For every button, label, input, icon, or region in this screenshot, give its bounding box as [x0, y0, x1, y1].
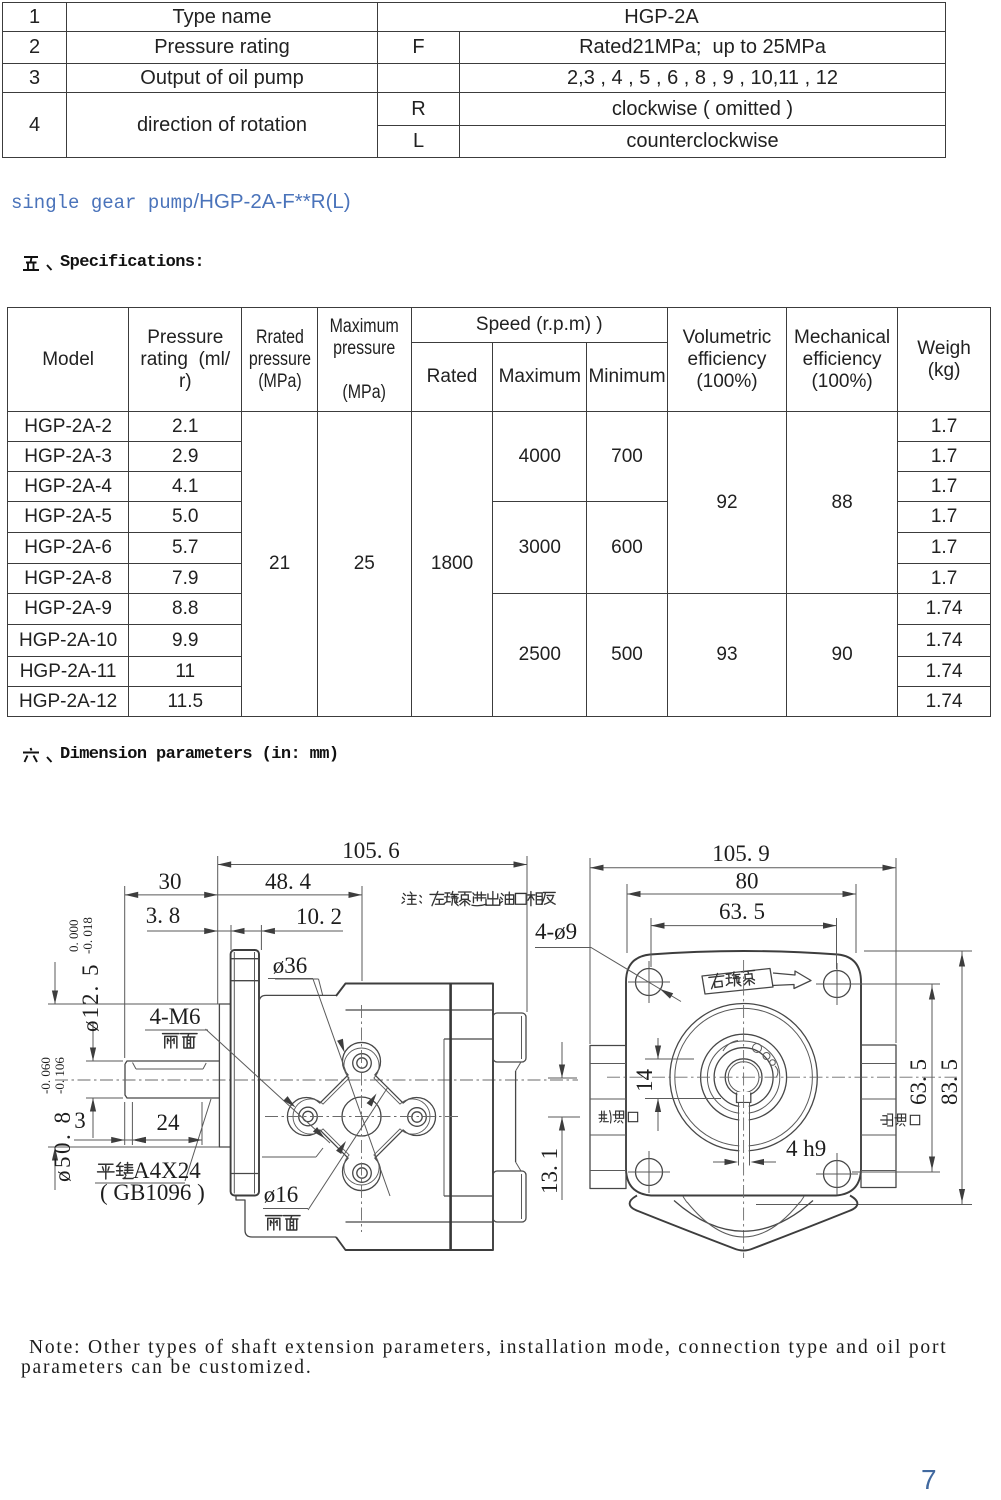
svg-text:80: 80 [736, 869, 759, 894]
svg-text:3. 8: 3. 8 [146, 903, 181, 928]
svg-text:14: 14 [632, 1069, 657, 1093]
svg-text:4 h9: 4 h9 [786, 1136, 826, 1161]
svg-text:0. 000: 0. 000 [66, 920, 81, 953]
svg-text:105. 6: 105. 6 [342, 838, 400, 863]
svg-text:63. 5: 63. 5 [906, 1059, 931, 1105]
svg-text:-0. 106: -0. 106 [52, 1057, 67, 1094]
svg-text:10. 2: 10. 2 [296, 904, 342, 929]
svg-text:ø36: ø36 [273, 953, 308, 978]
svg-text:30: 30 [159, 869, 182, 894]
svg-text:-0. 018: -0. 018 [80, 917, 95, 954]
svg-text:105. 9: 105. 9 [712, 841, 770, 866]
svg-text:48. 4: 48. 4 [265, 869, 312, 894]
svg-text:4-ø9: 4-ø9 [535, 919, 577, 944]
svg-text:( GB1096 ): ( GB1096 ) [100, 1180, 205, 1205]
svg-text:3: 3 [74, 1108, 86, 1133]
svg-text:ø16: ø16 [264, 1182, 299, 1207]
svg-text:83. 5: 83. 5 [937, 1059, 962, 1105]
svg-text:ø50. 8: ø50. 8 [50, 1110, 75, 1183]
svg-text:ø12. 5: ø12. 5 [78, 963, 103, 1033]
svg-text:13. 1: 13. 1 [537, 1148, 562, 1194]
svg-text:-0. 060: -0. 060 [38, 1057, 53, 1094]
svg-text:24: 24 [157, 1110, 181, 1135]
svg-text:63. 5: 63. 5 [719, 899, 765, 924]
svg-text:4-M6: 4-M6 [149, 1004, 200, 1029]
